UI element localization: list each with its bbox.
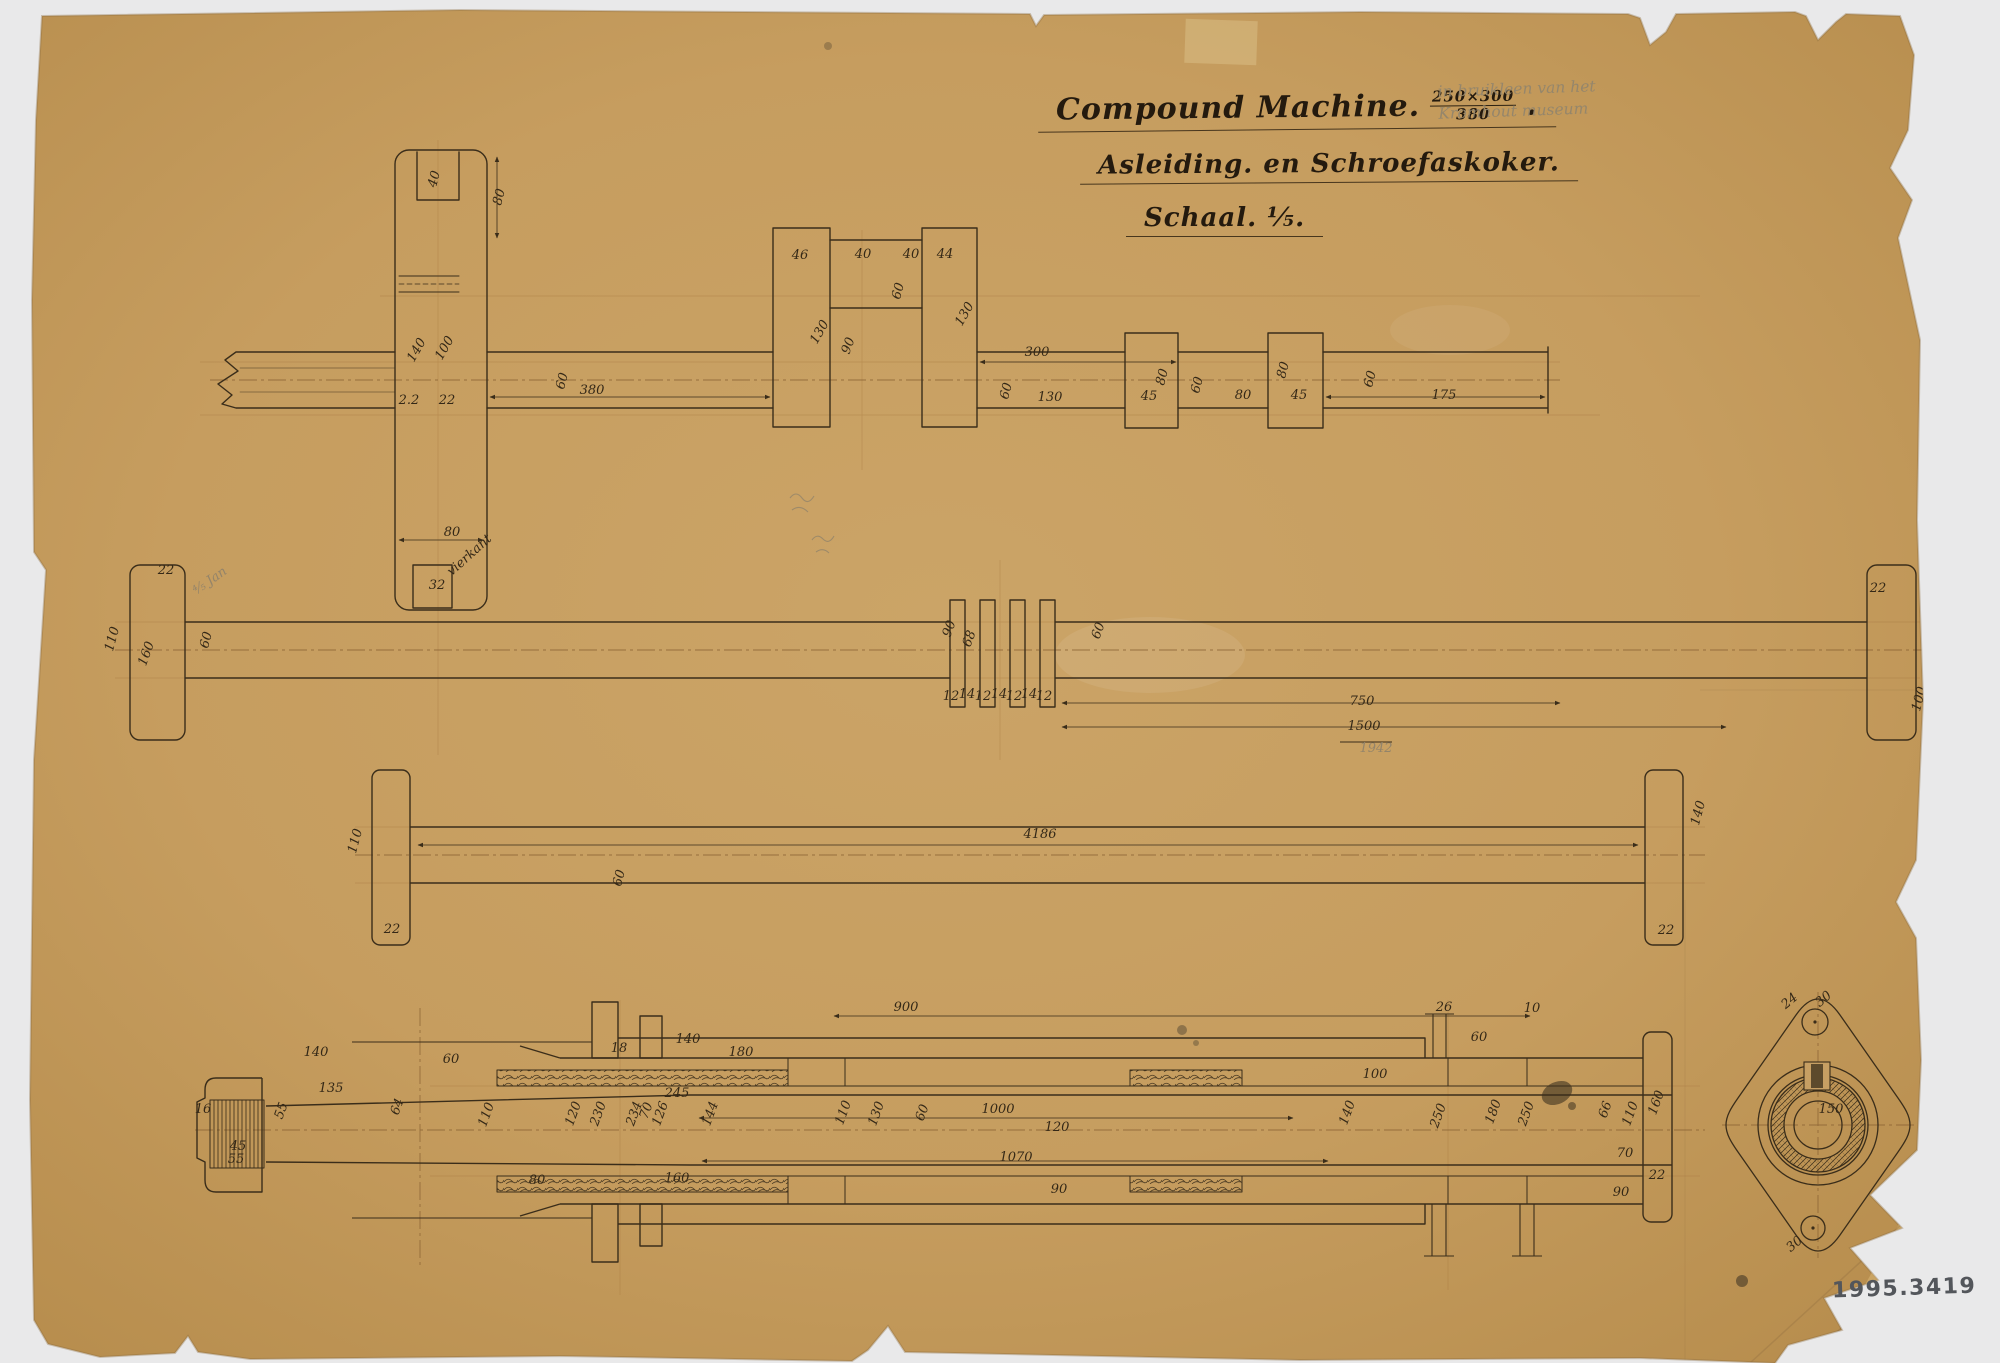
drawing-scale: Schaal. ⅕. [1126, 203, 1323, 237]
scanned-technical-drawing: 40801401002.2228032vierkant6038046404044… [0, 0, 2000, 1363]
loan-note-line2: Kromhout museum [1438, 98, 1597, 126]
title-text: Compound Machine. [1056, 89, 1420, 128]
loan-pencil-note: in bruikleen van het Kromhout museum [1437, 75, 1597, 125]
drawing-subtitle: Asleiding. en Schroefaskoker. [1080, 147, 1578, 184]
inventory-number: 1995.3419 [1832, 1273, 1977, 1303]
handwriting-overlay: Compound Machine. 250×300 380 . Asleidin… [0, 0, 2000, 1363]
